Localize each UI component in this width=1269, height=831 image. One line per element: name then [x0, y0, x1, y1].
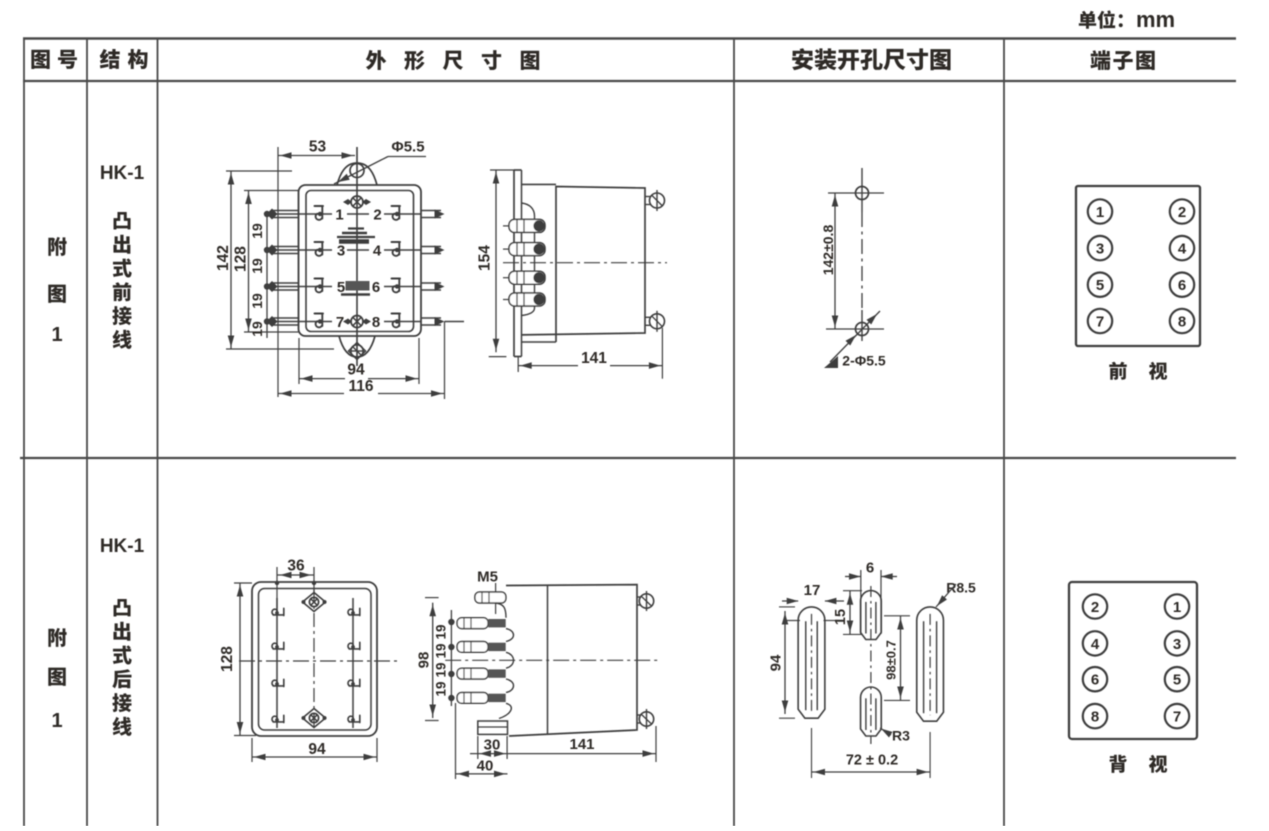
svg-text:141: 141 — [569, 736, 594, 753]
svg-text:2: 2 — [373, 207, 381, 224]
svg-text:HK-1: HK-1 — [100, 163, 145, 184]
svg-text:6: 6 — [866, 560, 874, 577]
svg-text:2-Φ5.5: 2-Φ5.5 — [842, 353, 886, 369]
svg-text:Φ5.5: Φ5.5 — [391, 139, 424, 156]
svg-text:1: 1 — [1173, 599, 1181, 616]
svg-text:19: 19 — [249, 258, 265, 274]
svg-text:94: 94 — [768, 654, 785, 671]
svg-text:17: 17 — [804, 582, 821, 599]
svg-text:5: 5 — [1096, 277, 1104, 294]
svg-text:40: 40 — [477, 758, 494, 775]
svg-text:2: 2 — [1091, 599, 1099, 616]
svg-text:3: 3 — [1096, 241, 1104, 258]
svg-text:141: 141 — [581, 350, 607, 367]
svg-text:HK-1: HK-1 — [100, 536, 145, 557]
svg-text:1: 1 — [1096, 204, 1104, 221]
svg-text:94: 94 — [347, 362, 365, 379]
svg-text:30: 30 — [484, 737, 501, 754]
svg-text:98: 98 — [416, 652, 433, 669]
svg-text:19: 19 — [434, 681, 449, 696]
svg-text:142±0.8: 142±0.8 — [820, 225, 836, 276]
svg-text:4: 4 — [373, 243, 382, 260]
svg-text:5: 5 — [337, 279, 345, 296]
svg-text:mm: mm — [1136, 7, 1175, 32]
svg-text:53: 53 — [309, 139, 327, 156]
svg-text:7: 7 — [336, 314, 344, 331]
svg-text:1: 1 — [51, 324, 62, 346]
svg-text:19: 19 — [434, 643, 449, 658]
svg-text:3: 3 — [1173, 636, 1181, 653]
svg-text:36: 36 — [287, 558, 305, 575]
svg-text:19: 19 — [434, 624, 449, 639]
svg-text:19: 19 — [249, 293, 265, 309]
svg-text:15: 15 — [833, 609, 849, 625]
svg-text:2: 2 — [1178, 204, 1186, 221]
svg-text:19: 19 — [249, 321, 265, 337]
svg-text:1: 1 — [335, 207, 343, 224]
svg-text:142: 142 — [215, 245, 232, 271]
svg-text:19: 19 — [249, 223, 265, 239]
svg-text:72 ± 0.2: 72 ± 0.2 — [846, 753, 898, 769]
svg-text:1: 1 — [51, 710, 62, 732]
svg-text:8: 8 — [1091, 709, 1099, 726]
svg-text:3: 3 — [337, 243, 345, 260]
svg-text:19: 19 — [434, 662, 449, 677]
svg-text:98±0.7: 98±0.7 — [884, 640, 899, 680]
svg-text:7: 7 — [1096, 314, 1104, 331]
svg-text:154: 154 — [477, 245, 494, 271]
svg-text:6: 6 — [372, 279, 380, 296]
svg-text:R3: R3 — [892, 728, 910, 744]
svg-text:M5: M5 — [477, 569, 498, 586]
svg-text:94: 94 — [308, 741, 326, 758]
svg-text:6: 6 — [1091, 672, 1099, 689]
svg-text:8: 8 — [372, 314, 380, 331]
svg-text:6: 6 — [1178, 277, 1186, 294]
svg-text:8: 8 — [1178, 314, 1186, 331]
svg-text:128: 128 — [233, 246, 250, 272]
svg-text:5: 5 — [1173, 672, 1181, 689]
svg-text:7: 7 — [1173, 709, 1181, 726]
svg-text:128: 128 — [219, 646, 236, 672]
svg-text:116: 116 — [348, 378, 373, 395]
svg-text:R8.5: R8.5 — [946, 580, 976, 596]
svg-text:4: 4 — [1178, 241, 1187, 258]
svg-text:4: 4 — [1091, 636, 1100, 653]
